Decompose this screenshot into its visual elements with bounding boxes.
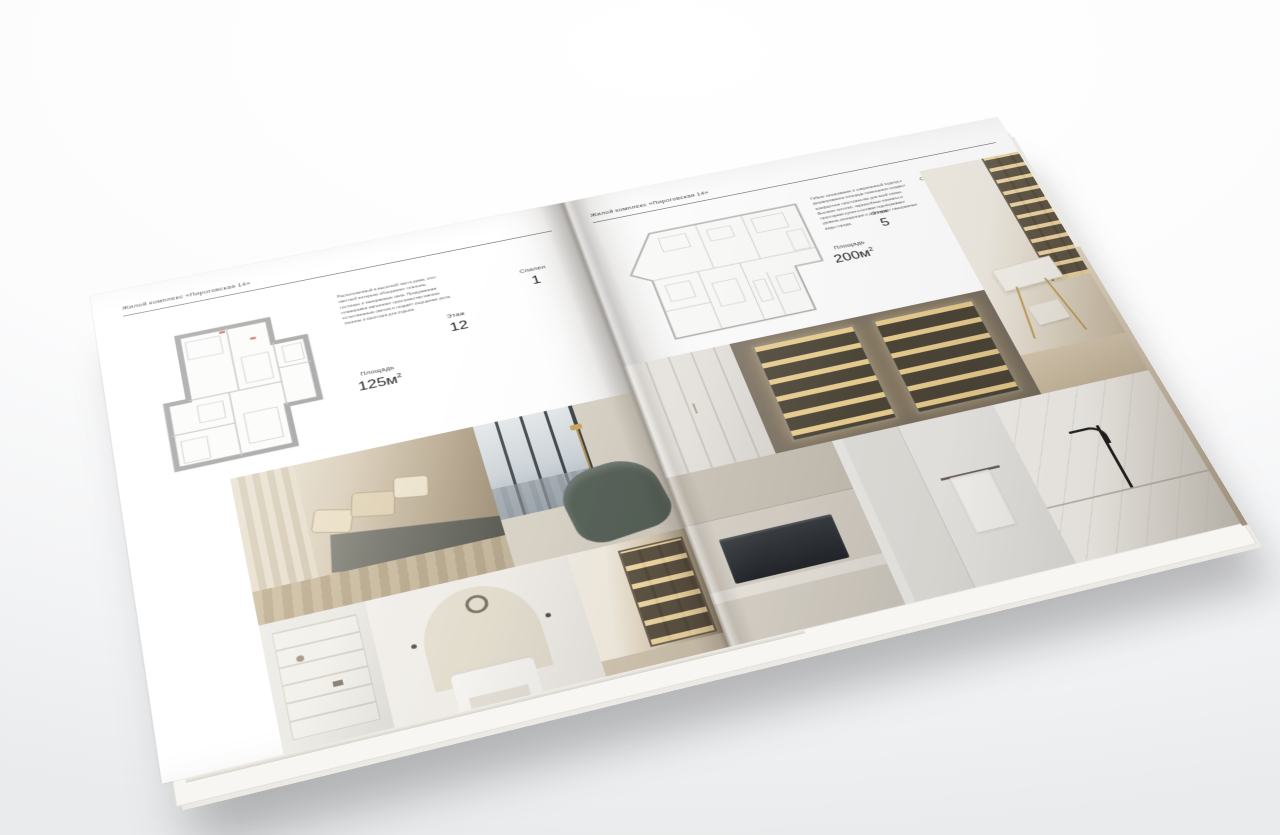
spec-floor-left: Этаж 12: [446, 310, 471, 335]
wall-sconce: [545, 612, 552, 617]
header-rule-left: [123, 231, 552, 317]
closet-column: [750, 324, 899, 442]
description-paragraph-right: Гибкое зонирование и современный подход …: [810, 177, 930, 232]
page-title-left: Жилой комплекс «Пироговская 14»: [122, 280, 252, 311]
pillow: [393, 475, 429, 499]
pillow: [311, 509, 354, 533]
spec-bedrooms-value: 1: [521, 271, 551, 289]
spec-bedrooms-left: Спален 1: [519, 264, 552, 289]
wardrobe-handle: [692, 403, 698, 413]
spec-area-left: Площадь 125м2: [354, 363, 404, 394]
wall-sconce: [410, 644, 417, 650]
towel: [949, 469, 1016, 533]
spec-floor-value: 12: [448, 318, 470, 335]
plan-walls: [617, 204, 843, 342]
shelves: [271, 613, 381, 741]
magazine-scene: Жилой комплекс «Пироговская 14»: [0, 0, 1280, 835]
description-paragraph-left: Расположенный в высотной части дома, это…: [337, 273, 455, 327]
spec-area-sup: 2: [396, 371, 403, 379]
photo-backdrop: Жилой комплекс «Пироговская 14»: [0, 0, 1280, 835]
spec-area-right: Площадь 200м2: [828, 238, 878, 266]
pillow: [350, 491, 395, 518]
